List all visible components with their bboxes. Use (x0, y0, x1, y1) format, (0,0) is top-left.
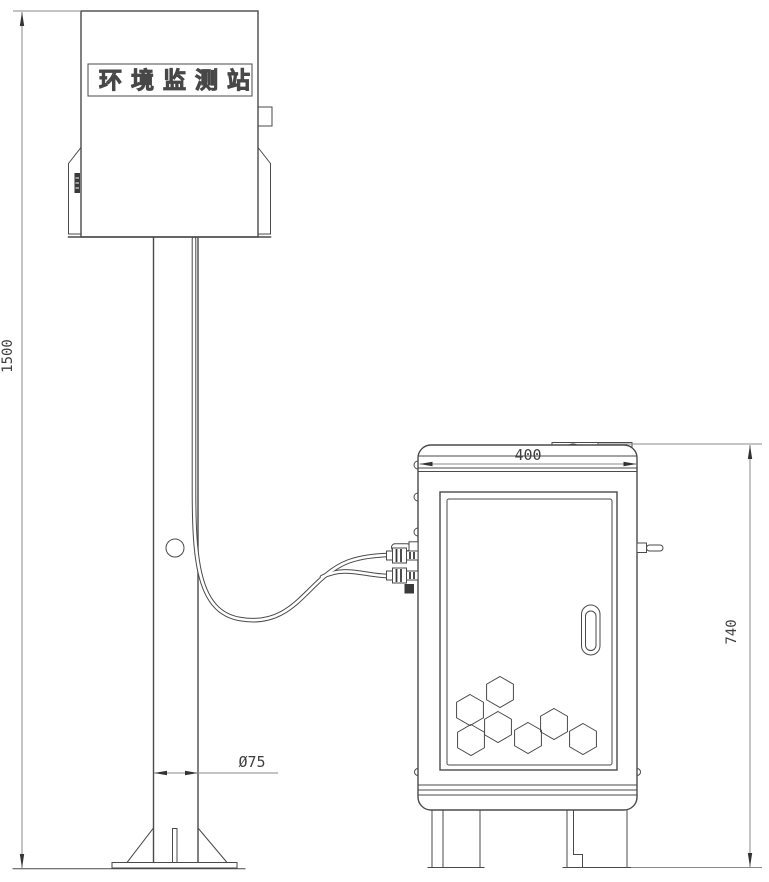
dimension-label-dia75: Ø75 (238, 753, 265, 771)
gland-collar (407, 571, 419, 580)
technical-drawing: 环境监测站 (0, 0, 769, 882)
right-gusset (198, 828, 227, 863)
base-plate (112, 863, 237, 869)
right-leg (567, 810, 627, 868)
gland-nut (393, 568, 407, 583)
cable-main-core (194, 239, 389, 620)
cable-assembly (194, 239, 389, 620)
head-side-tab (258, 107, 272, 126)
dimension-overall-height: 1500 (0, 11, 81, 868)
arrowhead-down (748, 853, 752, 867)
left-fittings (387, 542, 419, 594)
drawing-canvas: 环境监测站 (0, 0, 769, 882)
head-right-flap (258, 148, 271, 235)
arrowhead-down (20, 854, 24, 868)
cable-gland-bottom (387, 568, 419, 583)
pole-base (13, 828, 245, 869)
right-antenna-stub (637, 543, 663, 553)
arrowhead-up (20, 12, 24, 26)
antenna-base (637, 543, 647, 553)
dimension-label-1500: 1500 (0, 339, 16, 373)
door-handle (582, 605, 601, 655)
left-leg (432, 810, 480, 868)
left-gusset (127, 828, 154, 863)
monitoring-head-unit: 环境监测站 (69, 11, 273, 237)
cabinet-legs (428, 810, 631, 868)
pole-cable-hole (166, 539, 184, 557)
cable-main (194, 239, 389, 620)
gland-collar (407, 551, 419, 560)
equipment-cabinet (387, 443, 664, 868)
arrowhead-up (748, 445, 752, 459)
dimension-label-740: 740 (724, 619, 740, 644)
center-rib (173, 829, 178, 863)
head-enclosure (81, 11, 258, 237)
antenna-rod (647, 545, 664, 551)
gland-nut (393, 548, 407, 563)
name-plate-label: 环境监测站 (99, 67, 259, 94)
head-name-plate: 环境监测站 (88, 64, 259, 96)
gland-tip (387, 551, 393, 560)
dimension-label-400: 400 (514, 446, 541, 464)
side-port-block (405, 584, 415, 594)
gland-tip (387, 571, 393, 580)
cabinet-body (418, 445, 637, 810)
